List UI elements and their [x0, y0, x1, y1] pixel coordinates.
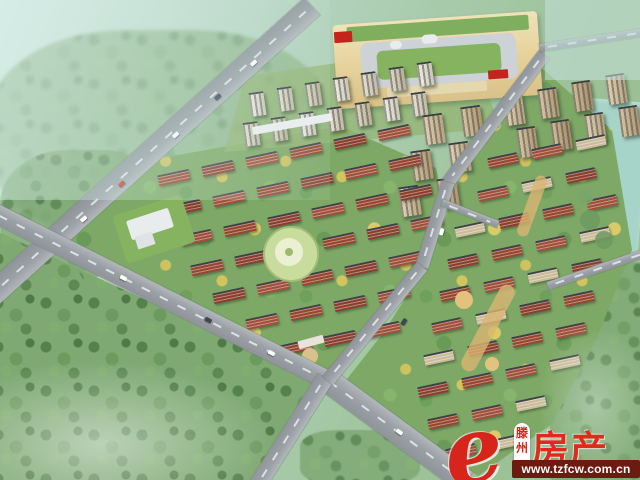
- north-band-towers-building: [332, 76, 350, 102]
- road-lane-marking: [548, 32, 638, 48]
- northeast-towers-building: [618, 105, 640, 137]
- east-plaza-1: [455, 291, 473, 309]
- mall-part-4: [389, 40, 402, 49]
- shore-trees-1: [580, 210, 600, 230]
- northeast-towers-building: [605, 73, 628, 105]
- north-band-towers-building: [382, 96, 400, 122]
- central-park-hub: [285, 248, 293, 256]
- shore-trees-2: [595, 231, 613, 249]
- mid-towers-building: [422, 113, 446, 145]
- mall-part-5: [333, 31, 352, 43]
- road-north-edge: [539, 28, 640, 52]
- north-band-towers-building: [416, 61, 434, 87]
- north-band-towers-building: [304, 81, 322, 107]
- north-band-towers-building: [354, 101, 372, 127]
- east-plaza-2: [485, 357, 499, 371]
- north-band-towers-building: [248, 91, 266, 117]
- mall-part-6: [487, 69, 508, 79]
- north-band-towers-building: [410, 91, 428, 117]
- shore-trees-3: [578, 188, 594, 204]
- north-band-towers-building: [360, 71, 378, 97]
- north-band-towers-building: [276, 86, 294, 112]
- north-band-towers-building: [388, 66, 406, 92]
- northeast-towers-building: [571, 80, 594, 112]
- northeast-towers-building: [537, 87, 560, 119]
- mall-part-3: [421, 34, 438, 44]
- scene-aerial-rendering: e 滕州 房产网 www.tzfcw.com.cn: [0, 0, 640, 480]
